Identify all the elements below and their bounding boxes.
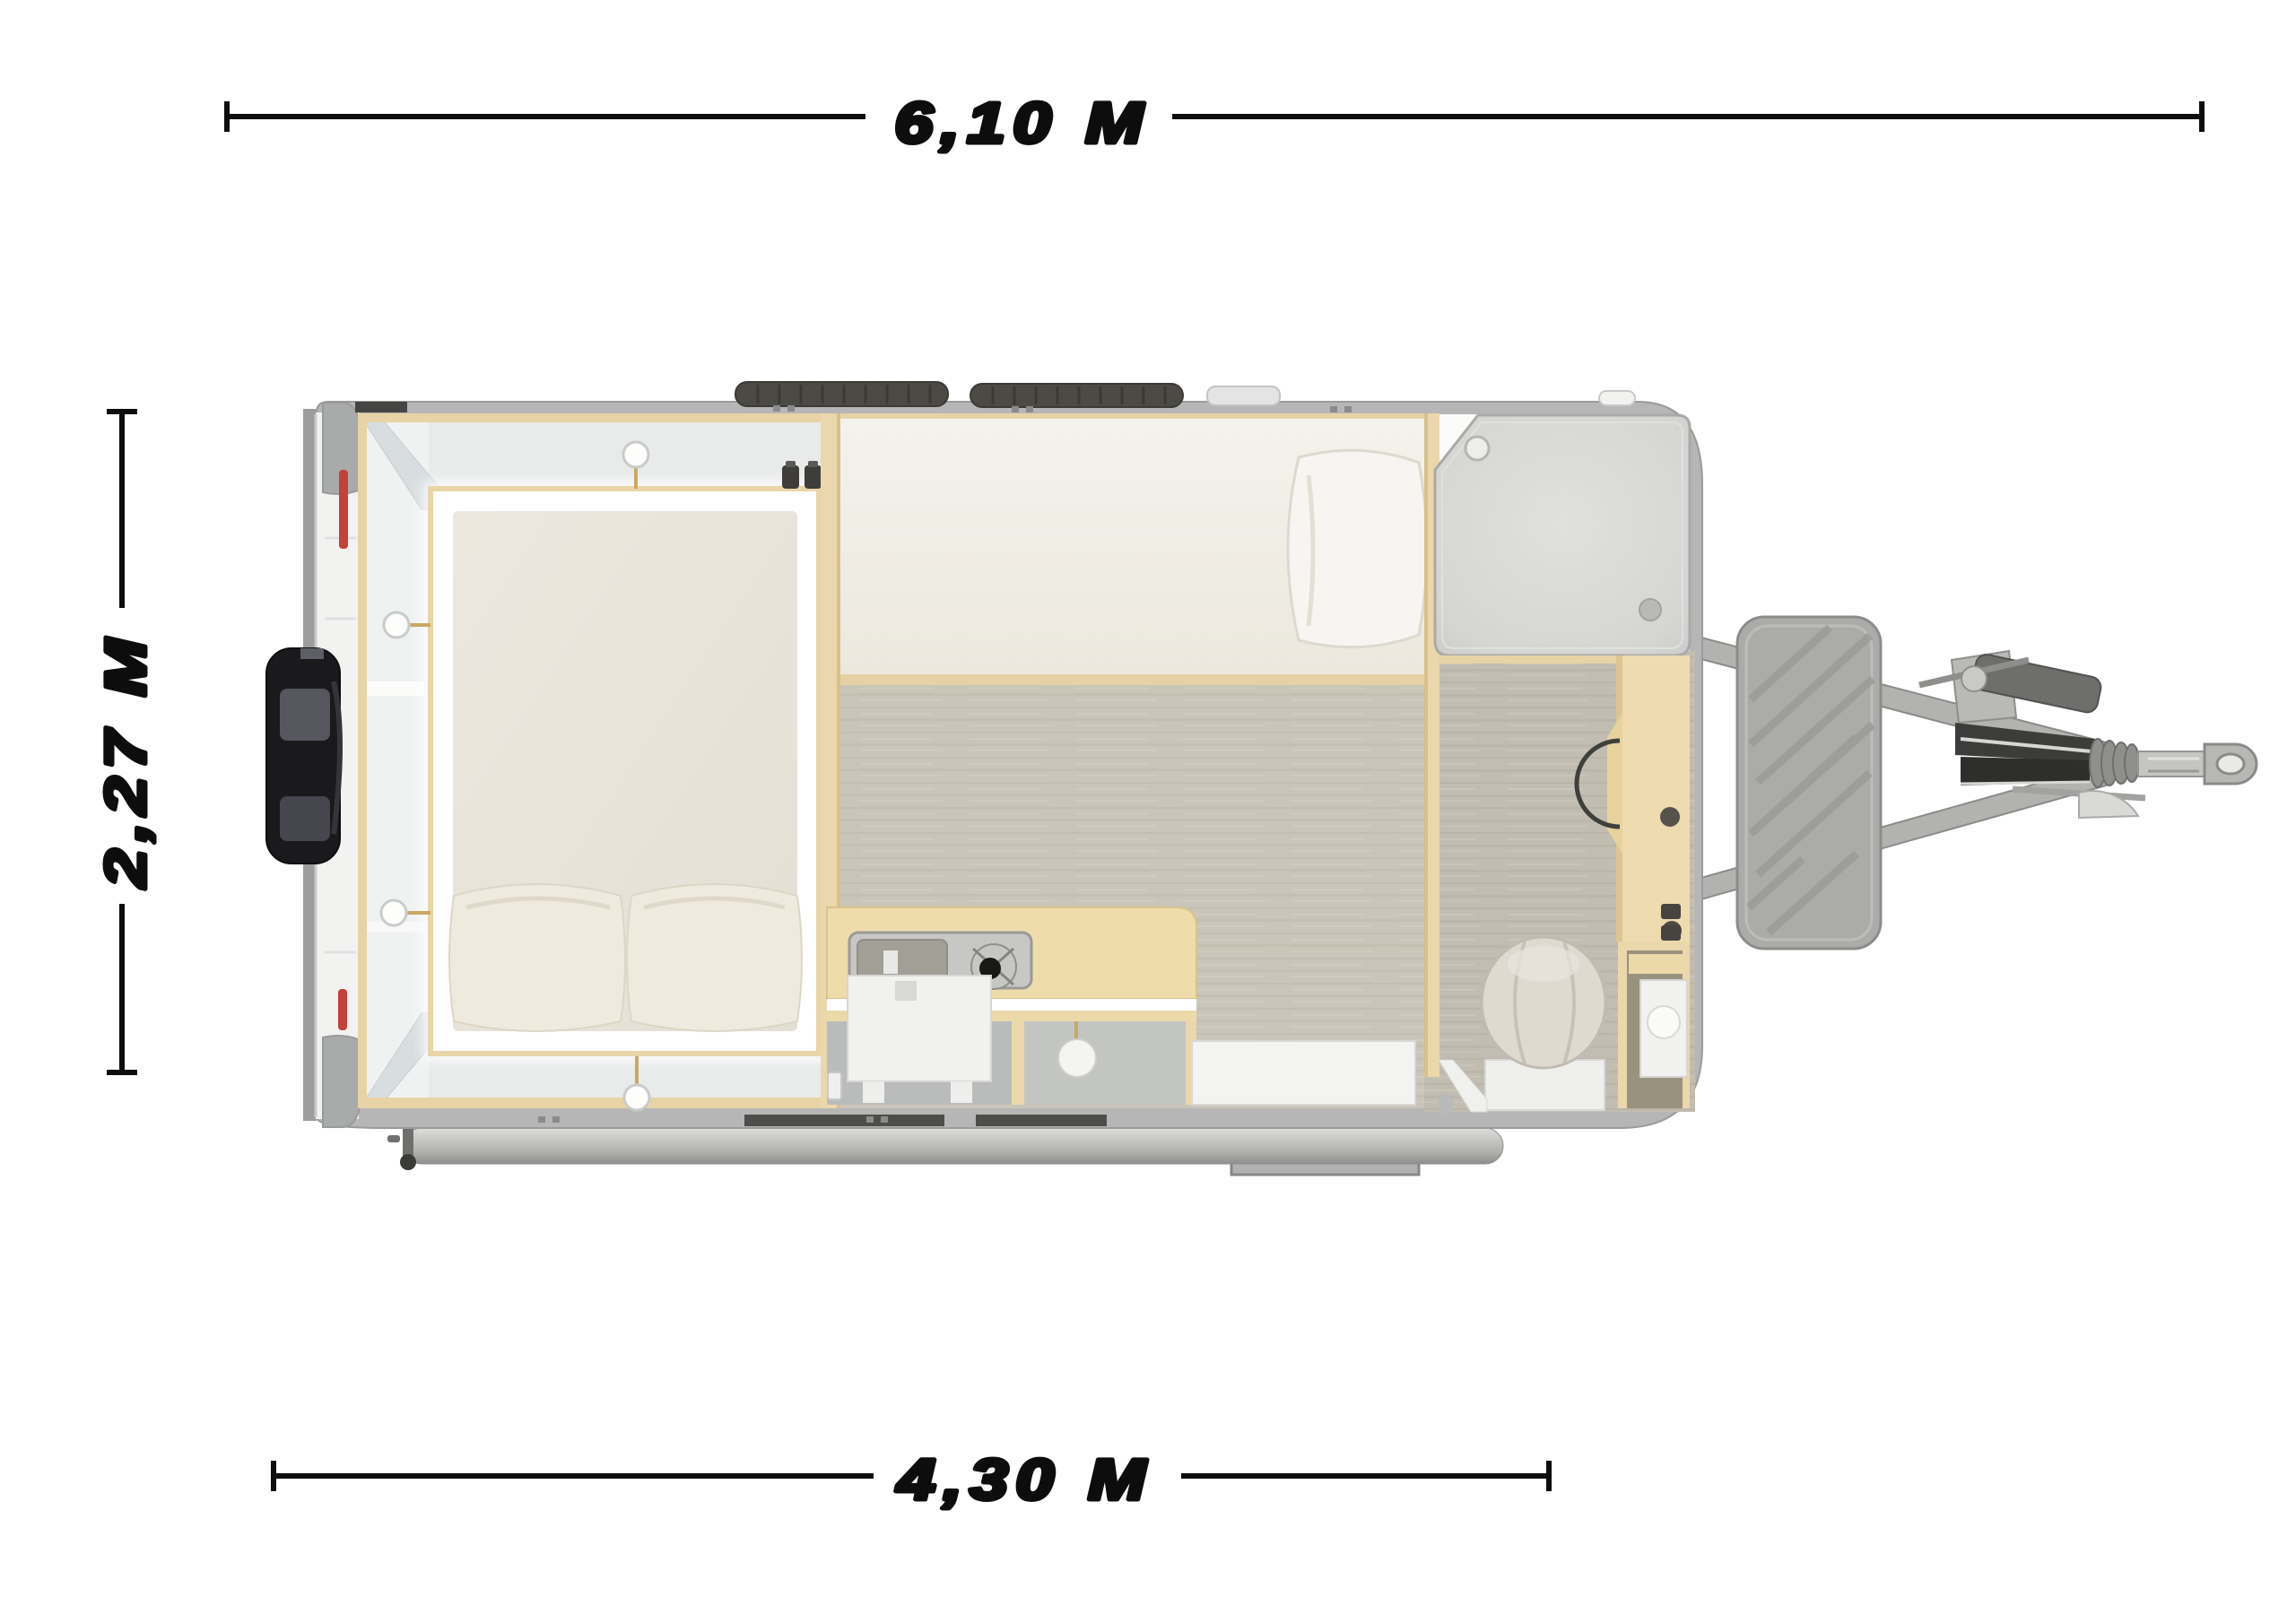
svg-text:2,27 M: 2,27 M <box>93 631 158 889</box>
svg-text:4,30 M: 4,30 M <box>895 1447 1152 1512</box>
svg-text:6,10 M: 6,10 M <box>894 91 1150 155</box>
